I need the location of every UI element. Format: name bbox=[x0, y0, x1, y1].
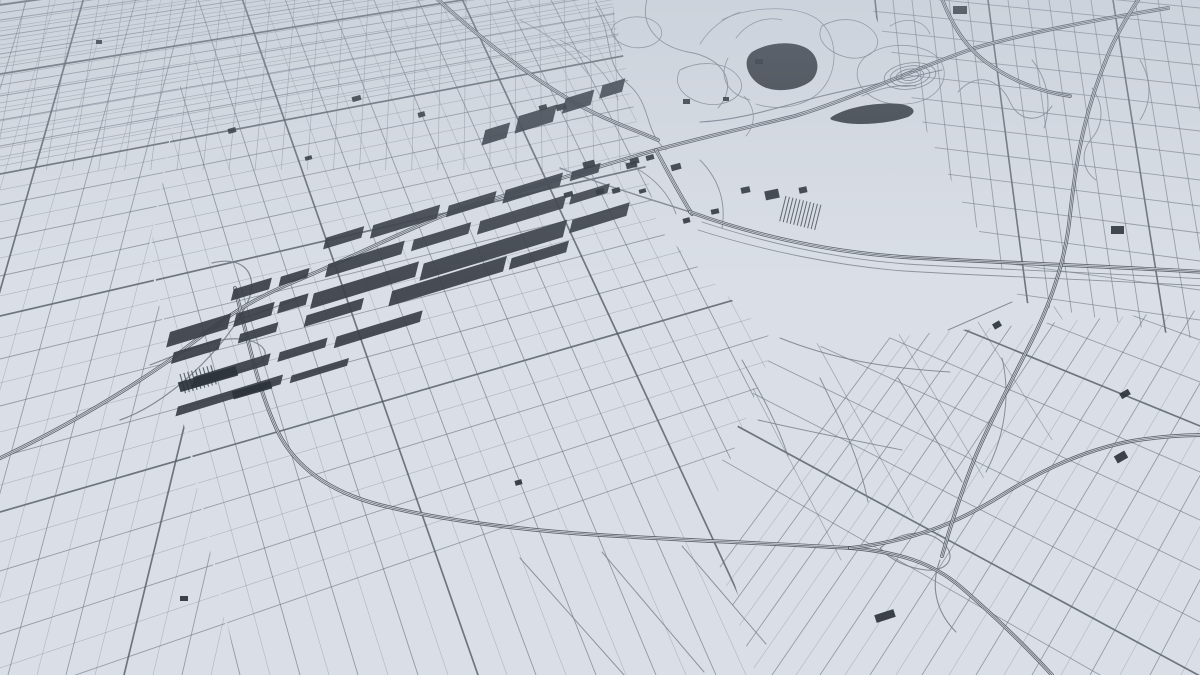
map-viewport bbox=[0, 0, 1200, 675]
city-map-render bbox=[0, 0, 1200, 675]
